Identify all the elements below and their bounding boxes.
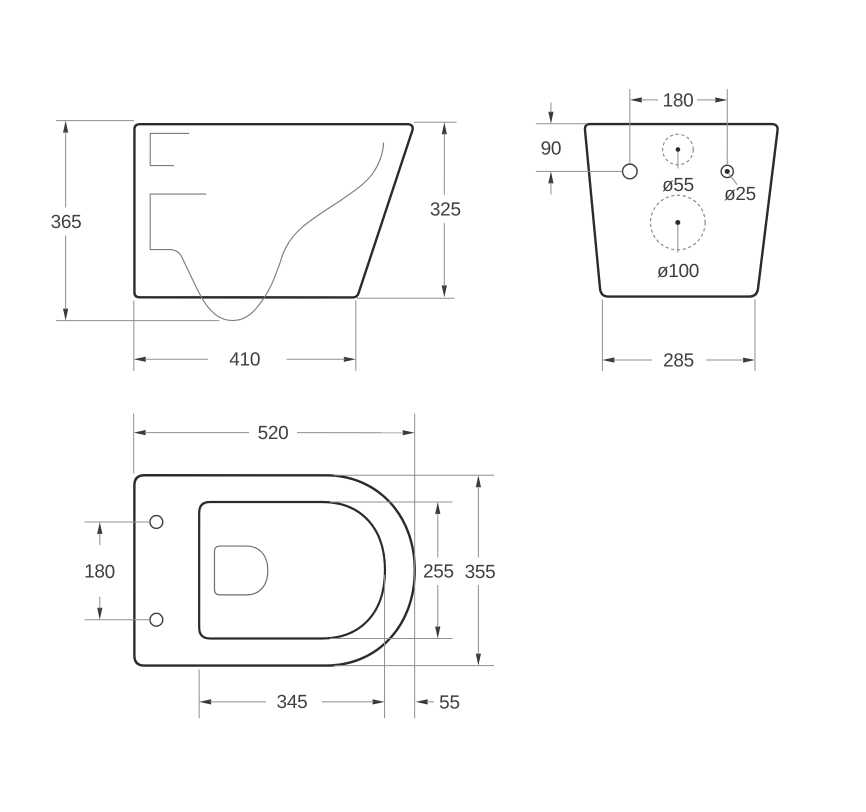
svg-text:ø100: ø100	[657, 261, 699, 282]
svg-text:55: 55	[439, 692, 460, 713]
svg-text:255: 255	[423, 562, 454, 583]
svg-text:410: 410	[229, 350, 260, 371]
svg-text:355: 355	[465, 562, 496, 583]
svg-text:ø55: ø55	[662, 175, 694, 196]
svg-text:90: 90	[541, 139, 562, 160]
svg-text:365: 365	[51, 212, 82, 233]
svg-text:180: 180	[84, 562, 115, 583]
svg-text:180: 180	[663, 91, 694, 112]
svg-text:520: 520	[258, 423, 289, 444]
svg-text:285: 285	[663, 350, 694, 371]
svg-text:345: 345	[277, 692, 308, 713]
svg-text:ø25: ø25	[724, 184, 756, 205]
svg-text:325: 325	[430, 199, 461, 220]
